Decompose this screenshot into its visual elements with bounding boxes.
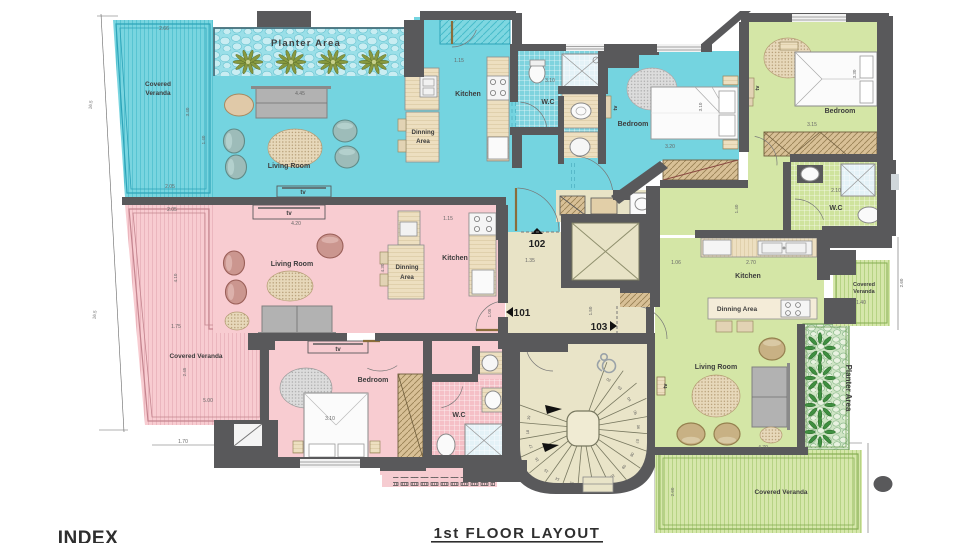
svg-text:INDEX: INDEX bbox=[58, 528, 119, 543]
svg-text:5.00: 5.00 bbox=[203, 398, 213, 404]
svg-text:Kitchen: Kitchen bbox=[455, 91, 481, 98]
svg-text:1.50: 1.50 bbox=[588, 306, 593, 315]
svg-text:Veranda: Veranda bbox=[853, 289, 875, 295]
svg-text:Covered: Covered bbox=[853, 282, 875, 288]
svg-text:2.70: 2.70 bbox=[746, 260, 756, 266]
svg-text:Bedroom: Bedroom bbox=[358, 377, 389, 384]
svg-text:3.30: 3.30 bbox=[852, 69, 857, 78]
svg-text:Dinning: Dinning bbox=[411, 129, 434, 136]
svg-text:3.20: 3.20 bbox=[665, 144, 675, 150]
svg-text:Area: Area bbox=[416, 138, 430, 145]
svg-text:Living Room: Living Room bbox=[271, 261, 313, 268]
svg-text:4.10: 4.10 bbox=[173, 273, 178, 282]
svg-text:W.C: W.C bbox=[452, 412, 465, 419]
svg-text:tv: tv bbox=[335, 347, 341, 353]
svg-text:3.10: 3.10 bbox=[698, 102, 703, 111]
svg-text:102: 102 bbox=[529, 239, 546, 250]
svg-text:3.15: 3.15 bbox=[807, 122, 817, 128]
svg-text:Bedroom: Bedroom bbox=[618, 121, 649, 128]
svg-text:18: 18 bbox=[526, 430, 530, 434]
svg-text:W.C: W.C bbox=[541, 99, 554, 106]
svg-text:Covered Veranda: Covered Veranda bbox=[169, 353, 222, 360]
svg-text:Area: Area bbox=[400, 274, 414, 281]
svg-text:tv: tv bbox=[286, 211, 292, 217]
svg-text:1.15: 1.15 bbox=[443, 216, 453, 222]
svg-text:Kitchen: Kitchen bbox=[442, 255, 468, 262]
svg-text:1.35: 1.35 bbox=[525, 258, 535, 264]
svg-text:4.45: 4.45 bbox=[295, 91, 305, 97]
svg-text:2.60: 2.60 bbox=[670, 487, 675, 496]
svg-text:Living Room: Living Room bbox=[268, 163, 310, 170]
svg-text:1.40: 1.40 bbox=[734, 204, 739, 213]
svg-text:2.60: 2.60 bbox=[899, 278, 904, 287]
svg-text:2.45: 2.45 bbox=[182, 367, 187, 376]
svg-text:1.06: 1.06 bbox=[671, 260, 681, 266]
svg-text:1.05: 1.05 bbox=[487, 308, 492, 317]
svg-text:Bedroom: Bedroom bbox=[825, 108, 856, 115]
svg-text:1.40: 1.40 bbox=[856, 300, 866, 306]
svg-text:1.40: 1.40 bbox=[201, 135, 206, 144]
svg-text:4.30: 4.30 bbox=[380, 263, 385, 272]
svg-text:Dinning Area: Dinning Area bbox=[717, 306, 758, 313]
svg-text:tv: tv bbox=[300, 190, 306, 196]
svg-text:4.70: 4.70 bbox=[758, 445, 768, 451]
svg-text:3.40: 3.40 bbox=[185, 107, 190, 116]
svg-text:Covered Veranda: Covered Veranda bbox=[754, 489, 807, 496]
svg-text:Planter Area: Planter Area bbox=[271, 38, 341, 49]
svg-text:2.05: 2.05 bbox=[165, 184, 175, 190]
svg-text:103: 103 bbox=[591, 322, 608, 333]
svg-text:W.C: W.C bbox=[829, 205, 842, 212]
svg-text:Veranda: Veranda bbox=[145, 90, 171, 97]
svg-text:3.10: 3.10 bbox=[325, 416, 335, 422]
svg-text:Covered: Covered bbox=[145, 81, 171, 88]
svg-text:2.10: 2.10 bbox=[831, 188, 841, 194]
svg-text:4.20: 4.20 bbox=[291, 221, 301, 227]
svg-text:1.75: 1.75 bbox=[171, 324, 181, 330]
svg-text:1.70: 1.70 bbox=[178, 439, 188, 445]
svg-text:101: 101 bbox=[514, 308, 531, 319]
svg-text:Living Room: Living Room bbox=[695, 364, 737, 371]
svg-text:Planter Area: Planter Area bbox=[844, 365, 853, 412]
svg-text:2.05: 2.05 bbox=[167, 207, 177, 213]
svg-text:Kitchen: Kitchen bbox=[735, 273, 761, 280]
svg-text:2.66: 2.66 bbox=[159, 26, 169, 32]
svg-text:1st FLOOR LAYOUT: 1st FLOOR LAYOUT bbox=[434, 525, 601, 542]
svg-text:Dinning: Dinning bbox=[395, 264, 418, 271]
svg-text:06: 06 bbox=[636, 425, 640, 429]
svg-text:3.10: 3.10 bbox=[545, 78, 555, 84]
svg-text:1.15: 1.15 bbox=[454, 58, 464, 64]
